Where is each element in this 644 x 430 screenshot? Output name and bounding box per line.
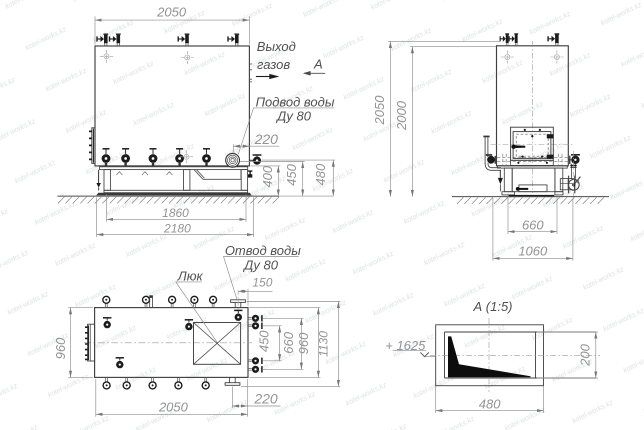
svg-text:220: 220 [254,131,279,147]
svg-text:480: 480 [479,396,501,411]
svg-text:Ду 80: Ду 80 [275,109,312,124]
svg-text:Отвод воды: Отвод воды [225,243,301,258]
svg-text:1130: 1130 [316,331,330,357]
svg-text:2180: 2180 [163,222,191,236]
svg-text:2050: 2050 [156,5,187,20]
svg-text:960: 960 [296,332,311,354]
svg-text:400: 400 [260,165,275,187]
svg-text:450: 450 [257,330,272,352]
svg-text:Выход: Выход [257,39,296,54]
svg-text:1860: 1860 [162,206,189,220]
svg-text:Люк: Люк [177,268,204,283]
svg-text:200: 200 [577,343,592,366]
svg-text:150: 150 [252,275,272,289]
svg-text:220: 220 [253,390,278,406]
svg-text:960: 960 [53,337,68,359]
svg-text:2050: 2050 [372,95,387,126]
svg-text:Подвод воды: Подвод воды [256,94,335,109]
svg-text:480: 480 [313,163,328,185]
svg-text:450: 450 [284,163,299,185]
svg-text:А: А [313,57,323,72]
svg-text:Ду 80: Ду 80 [242,258,279,273]
svg-text:660: 660 [281,331,296,353]
svg-text:2050: 2050 [158,399,189,414]
svg-text:2000: 2000 [394,100,409,131]
svg-text:газов: газов [257,57,290,72]
svg-text:660: 660 [522,218,544,233]
svg-text:А (1:5): А (1:5) [472,299,512,314]
svg-text:1060: 1060 [518,243,548,258]
